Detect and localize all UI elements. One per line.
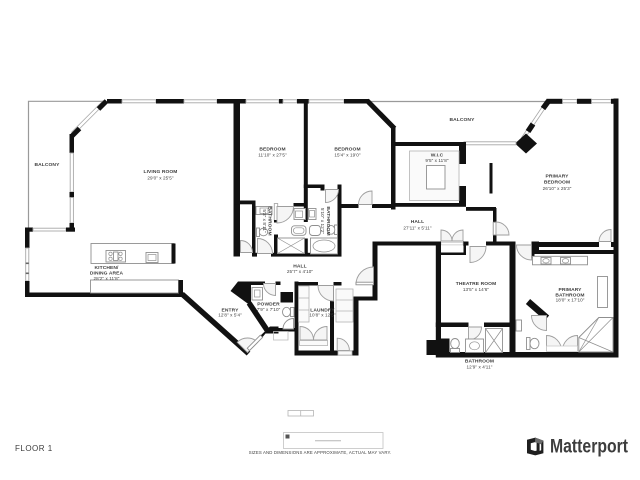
svg-text:26'10" x 25'3": 26'10" x 25'3" — [543, 186, 572, 191]
svg-text:KITCHEN/: KITCHEN/ — [95, 265, 119, 271]
svg-text:5'3" x 8'11": 5'3" x 8'11" — [262, 209, 267, 233]
svg-text:Matterport: Matterport — [550, 437, 629, 458]
svg-text:7'9" x 7'10": 7'9" x 7'10" — [257, 307, 281, 312]
svg-text:12'8" x 5'4": 12'8" x 5'4" — [218, 313, 242, 318]
svg-text:9'5" x 11'8": 9'5" x 11'8" — [425, 158, 449, 163]
svg-text:18'0" x 17'10": 18'0" x 17'10" — [556, 298, 585, 303]
svg-text:29'0" x 25'5": 29'0" x 25'5" — [147, 176, 174, 181]
svg-text:BALCONY: BALCONY — [35, 162, 61, 168]
svg-text:27'11" x 5'11": 27'11" x 5'11" — [403, 225, 431, 230]
svg-text:PRIMARY: PRIMARY — [558, 287, 582, 293]
svg-text:LIVING ROOM: LIVING ROOM — [144, 169, 178, 175]
svg-text:11'10" x 27'5": 11'10" x 27'5" — [258, 153, 287, 158]
svg-text:25'7" x 4'10": 25'7" x 4'10" — [287, 269, 314, 274]
svg-text:12'9" x 4'11": 12'9" x 4'11" — [467, 365, 493, 370]
svg-text:5'10" x 12'2": 5'10" x 12'2" — [320, 208, 325, 235]
svg-text:BEDROOM: BEDROOM — [544, 180, 570, 186]
svg-text:PRIMARY: PRIMARY — [545, 174, 569, 180]
svg-text:13'5" x 14'6": 13'5" x 14'6" — [463, 287, 490, 292]
svg-text:10'8" x 12'5": 10'8" x 12'5" — [309, 313, 336, 318]
svg-text:FLOOR 1: FLOOR 1 — [15, 444, 53, 453]
svg-text:28'2" x 11'8": 28'2" x 11'8" — [94, 276, 120, 281]
svg-text:HALL: HALL — [411, 219, 424, 225]
svg-text:BALCONY: BALCONY — [450, 117, 476, 123]
svg-text:15'4" x 19'0": 15'4" x 19'0" — [334, 153, 361, 158]
svg-text:SIZES AND DIMENSIONS ARE APPRO: SIZES AND DIMENSIONS ARE APPROXIMATE, AC… — [249, 450, 392, 455]
